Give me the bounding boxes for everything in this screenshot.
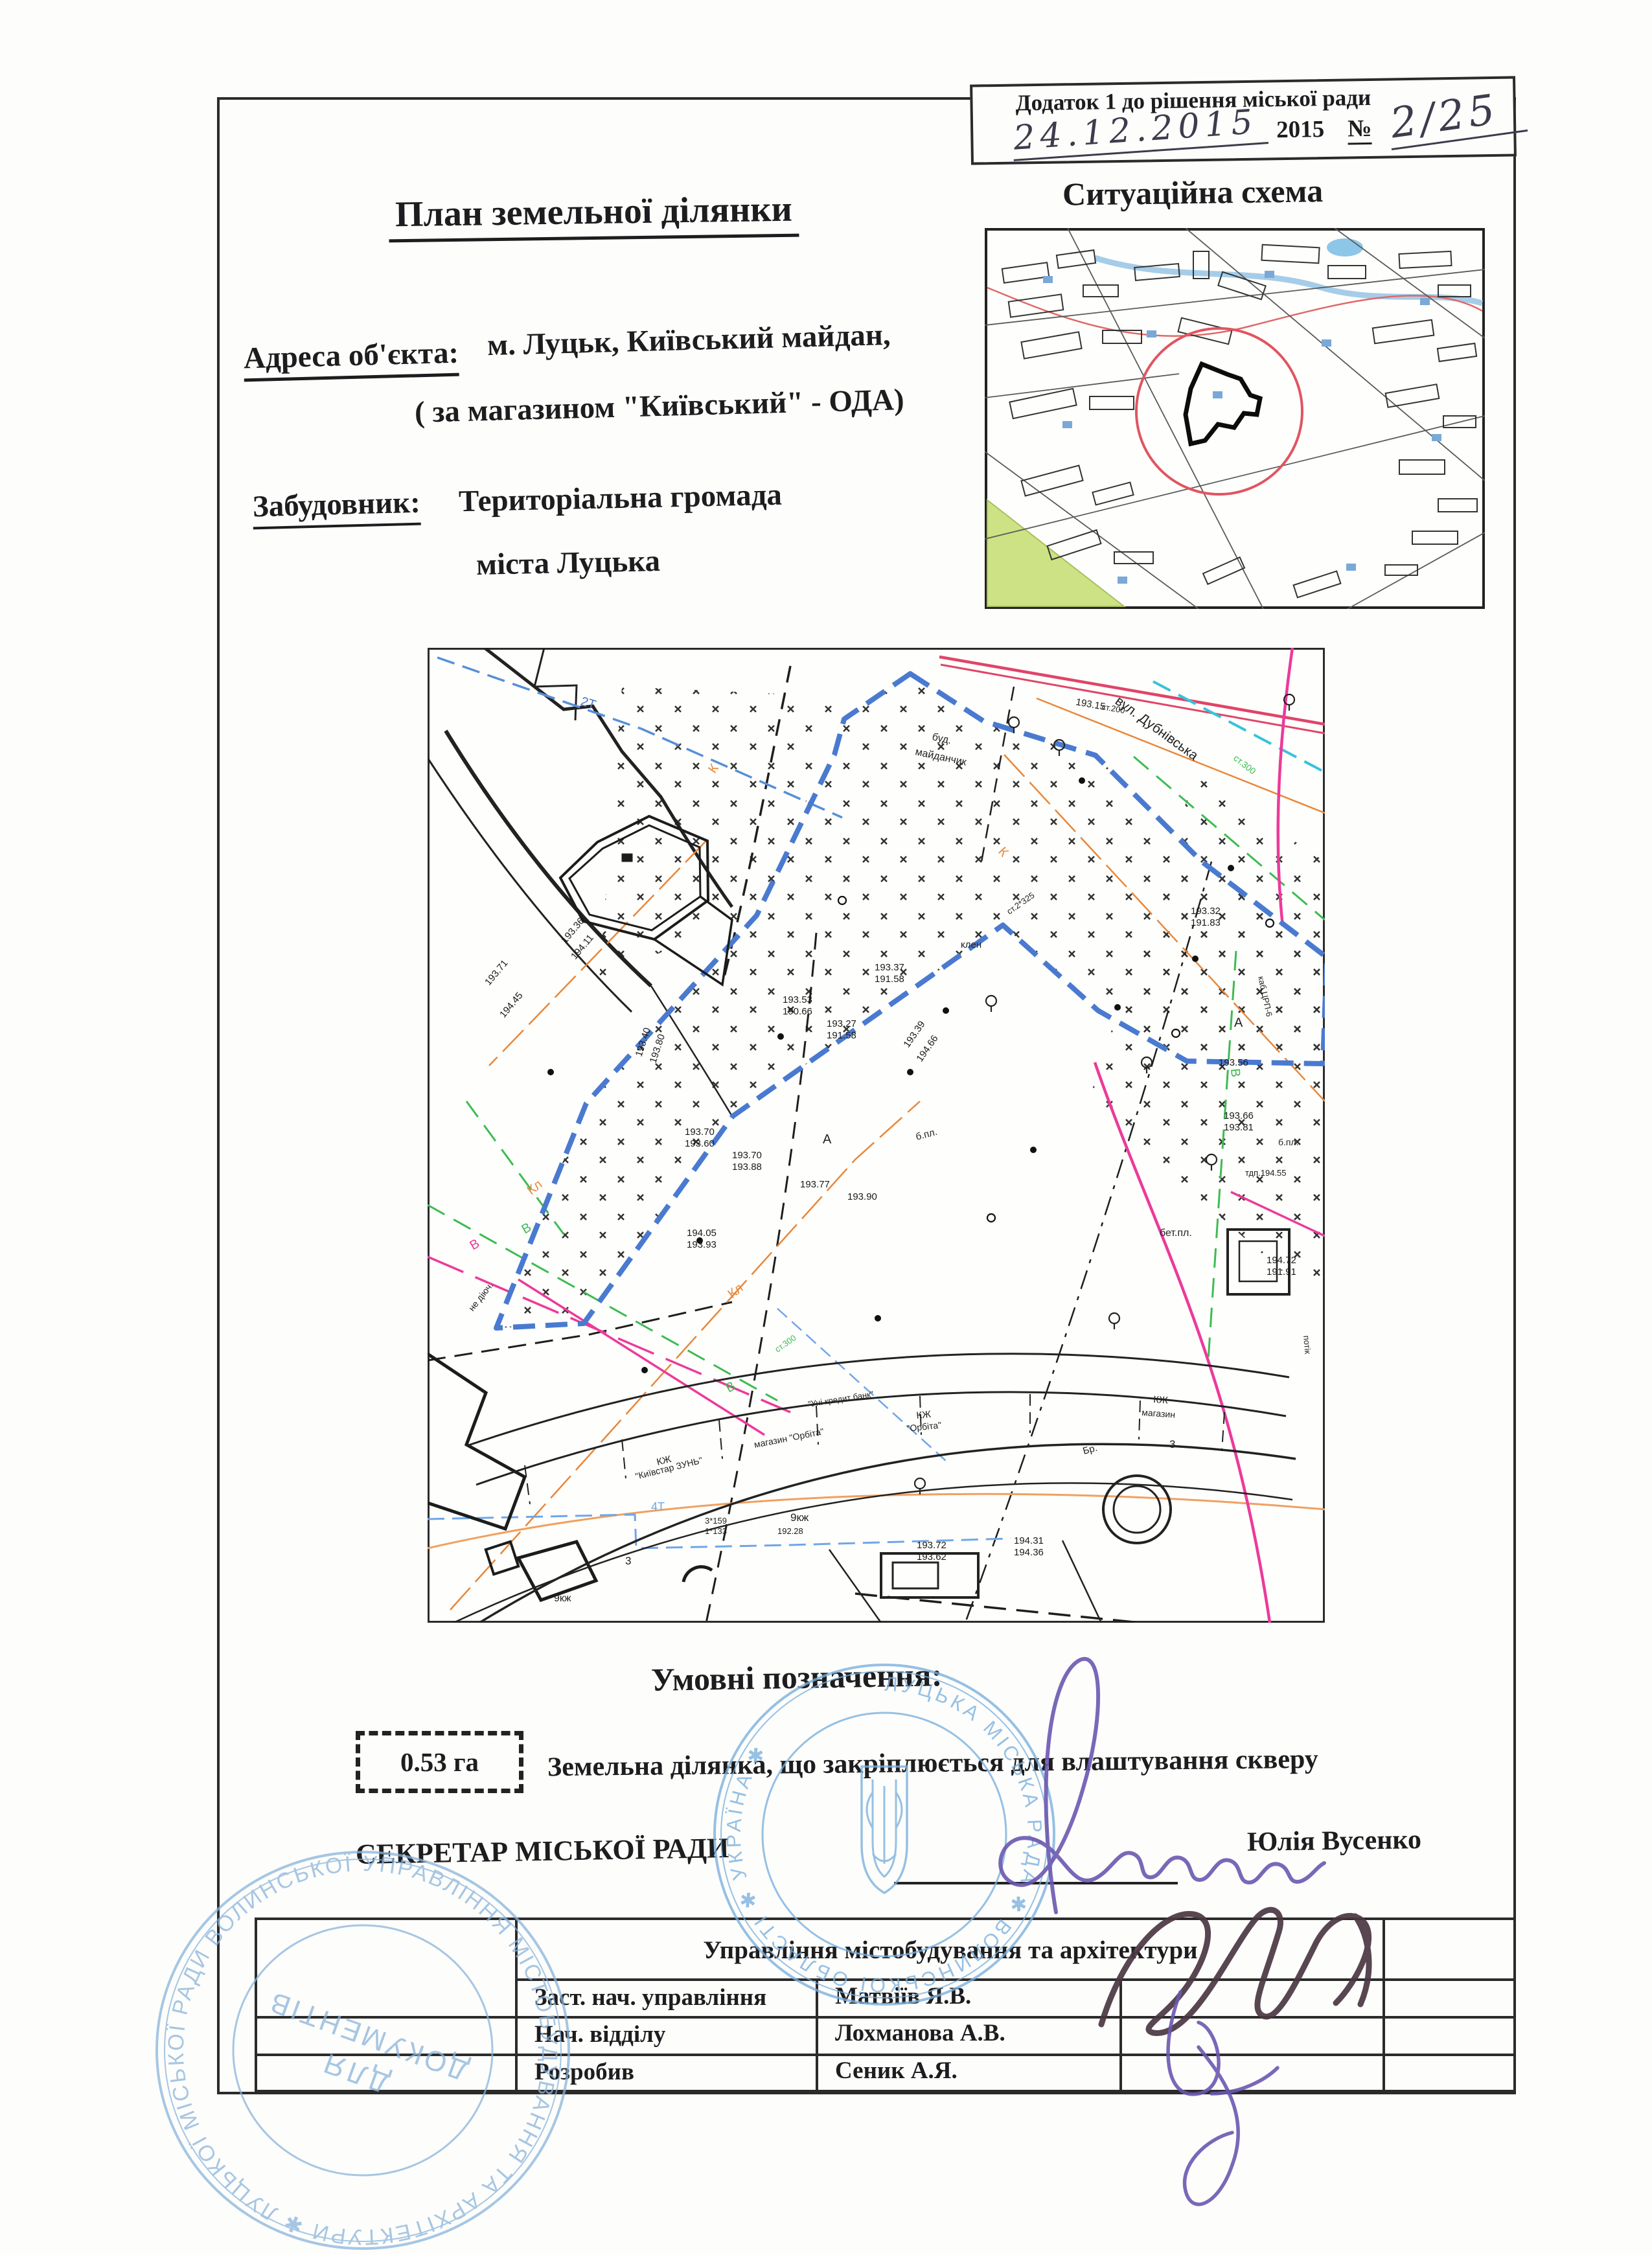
- appendix-number-handwritten: 2/25: [1385, 82, 1528, 150]
- table-row-name: Матвіїв Я.В.: [835, 1982, 971, 2010]
- table-row-position: Заст. нач. управління: [534, 1984, 766, 2011]
- svg-text:194.05: 194.05: [687, 1228, 717, 1239]
- table-header: Управління містобудування та архітектури: [529, 1936, 1371, 1965]
- svg-text:191.83: 191.83: [1191, 917, 1221, 928]
- svg-text:191.58: 191.58: [827, 1030, 856, 1041]
- svg-text:4Т: 4Т: [651, 1500, 665, 1513]
- svg-text:193.32: 193.32: [1191, 906, 1221, 917]
- table-vline-2: [816, 1978, 818, 2090]
- svg-text:193.72: 193.72: [917, 1540, 946, 1551]
- situation-map-frame: [986, 229, 1484, 608]
- table-row-position: Розробив: [534, 2058, 634, 2086]
- svg-text:1*133: 1*133: [705, 1526, 727, 1536]
- svg-text:193.66: 193.66: [1224, 1110, 1254, 1121]
- svg-text:193.70: 193.70: [732, 1150, 762, 1161]
- svg-text:193.37: 193.37: [875, 962, 904, 973]
- svg-text:клен: клен: [961, 939, 981, 950]
- table-row-position: Нач. відділу: [534, 2020, 665, 2048]
- pond: [1327, 238, 1363, 257]
- signature-line: [894, 1882, 1178, 1884]
- svg-text:3*159: 3*159: [705, 1516, 727, 1526]
- svg-text:9кж: 9кж: [554, 1593, 571, 1604]
- doc-title: План земельної ділянки: [389, 189, 799, 243]
- svg-text:194.31: 194.31: [1014, 1535, 1044, 1546]
- appendix-year: 2015: [1276, 115, 1325, 144]
- table-vline-4: [1382, 1920, 1385, 2090]
- svg-text:190.66: 190.66: [783, 1006, 812, 1017]
- situation-map: [985, 228, 1485, 609]
- developer-value-line2: міста Луцька: [476, 544, 660, 582]
- svg-text:193.90: 193.90: [847, 1191, 877, 1202]
- appendix-box: Додаток 1 до рішення міської ради 24.12.…: [970, 76, 1517, 165]
- appendix-no-sign: №: [1348, 115, 1372, 145]
- svg-text:193.77: 193.77: [800, 1179, 830, 1190]
- svg-text:193.56: 193.56: [1219, 1057, 1248, 1068]
- legend-area-value: 0.53 га: [360, 1735, 519, 1789]
- svg-text:191.91: 191.91: [1267, 1266, 1296, 1277]
- svg-text:б.пл.: б.пл.: [1278, 1137, 1299, 1147]
- svg-text:А: А: [823, 1132, 832, 1147]
- table-row-name: Лохманова А.В.: [835, 2019, 1005, 2047]
- svg-text:192.28: 192.28: [777, 1526, 803, 1536]
- svg-text:3: 3: [625, 1555, 631, 1567]
- table-row-line-1: [257, 2016, 1513, 2019]
- legend-title: Умовні позначення:: [651, 1656, 943, 1699]
- svg-text:193.88: 193.88: [732, 1162, 762, 1173]
- svg-text:193.93: 193.93: [687, 1239, 717, 1250]
- svg-text:КЖ: КЖ: [916, 1409, 932, 1421]
- svg-text:КЖ: КЖ: [1153, 1394, 1169, 1406]
- secretary-label: СЕКРЕТАР МІСЬКОЇ РАДИ: [356, 1831, 729, 1871]
- svg-text:194.36: 194.36: [1014, 1547, 1044, 1558]
- situation-title: Ситуаційна схема: [1062, 172, 1324, 213]
- svg-text:тдп.194.55: тдп.194.55: [1245, 1168, 1287, 1178]
- svg-text:191.58: 191.58: [875, 974, 904, 985]
- svg-text:193.70: 193.70: [685, 1127, 715, 1138]
- svg-text:9кж: 9кж: [790, 1511, 809, 1524]
- svg-text:А: А: [1234, 1016, 1243, 1030]
- secretary-name: Юлія Вусенко: [1247, 1824, 1422, 1858]
- approvals-table: Управління містобудування та архітектури…: [255, 1917, 1516, 2092]
- svg-text:3: 3: [1169, 1438, 1175, 1450]
- svg-text:В: В: [1228, 1068, 1243, 1078]
- developer-label: Забудовник:: [252, 485, 420, 530]
- svg-text:193.62: 193.62: [917, 1551, 946, 1562]
- svg-text:потік: потік: [1302, 1335, 1313, 1355]
- svg-text:193.60: 193.60: [685, 1138, 715, 1149]
- svg-text:194.72: 194.72: [1267, 1255, 1296, 1266]
- table-header-line: [515, 1978, 1513, 1981]
- table-row-name: Сеник А.Я.: [835, 2057, 958, 2085]
- table-vline-3: [1119, 1978, 1122, 2090]
- table-row-line-2: [257, 2054, 1513, 2056]
- scanned-document-page: Додаток 1 до рішення міської ради 24.12.…: [0, 0, 1652, 2255]
- main-map: вул. Дубнівська 2Т К Кл Кл К В В В В 4Т …: [428, 648, 1325, 1623]
- svg-text:193.81: 193.81: [1224, 1122, 1254, 1133]
- table-vline-1: [515, 1920, 518, 2090]
- svg-text:193.27: 193.27: [827, 1018, 856, 1029]
- svg-text:193.53: 193.53: [783, 994, 812, 1005]
- svg-text:бет.пл.: бет.пл.: [1160, 1228, 1192, 1239]
- address-label: Адреса об'єкта:: [243, 336, 459, 382]
- legend-area-box: 0.53 га: [356, 1731, 523, 1793]
- developer-value-line1: Територіальна громада: [458, 477, 782, 519]
